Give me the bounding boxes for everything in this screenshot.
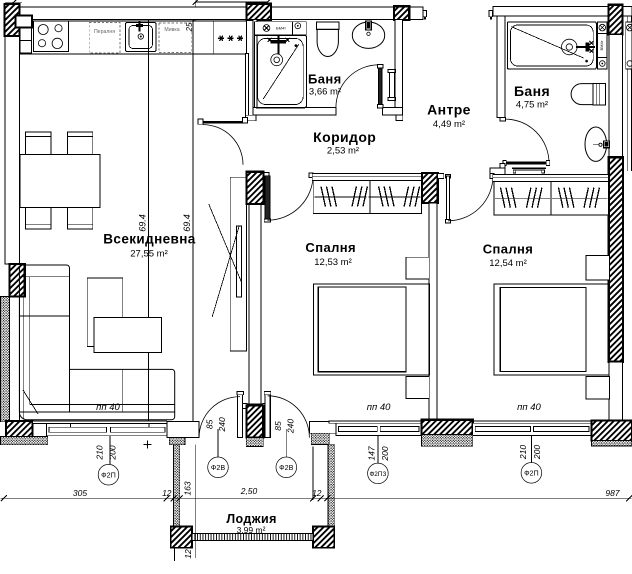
svg-text:163: 163: [183, 481, 193, 495]
svg-text:240: 240: [285, 419, 295, 434]
svg-text:200: 200: [532, 445, 542, 460]
svg-text:987: 987: [605, 488, 619, 498]
svg-text:210: 210: [94, 445, 104, 460]
svg-text:12,53 m²: 12,53 m²: [314, 257, 352, 268]
svg-text:Ф2В: Ф2В: [211, 463, 225, 472]
svg-text:4,49 m²: 4,49 m²: [433, 119, 465, 130]
svg-text:85: 85: [204, 419, 214, 429]
svg-text:200: 200: [108, 445, 118, 460]
svg-text:2,53 m²: 2,53 m²: [327, 146, 359, 157]
svg-text:пп 40: пп 40: [96, 402, 120, 413]
svg-text:240: 240: [217, 417, 227, 432]
svg-text:ВМ4т: ВМ4т: [599, 40, 604, 50]
svg-text:147: 147: [366, 446, 376, 460]
svg-text:12: 12: [162, 488, 172, 498]
svg-text:Баня: Баня: [308, 72, 342, 87]
svg-text:12: 12: [183, 549, 193, 559]
svg-text:12: 12: [312, 488, 322, 498]
svg-text:Спалня: Спалня: [305, 240, 356, 255]
svg-text:Ф2П: Ф2П: [101, 470, 116, 479]
svg-text:2,50: 2,50: [240, 486, 258, 496]
svg-text:210: 210: [518, 445, 528, 460]
svg-text:69.4: 69.4: [138, 214, 148, 232]
svg-text:Коридор: Коридор: [313, 129, 376, 145]
svg-text:БМ4т: БМ4т: [276, 26, 286, 31]
svg-text:3,66 m²: 3,66 m²: [309, 87, 341, 98]
svg-text:Баня: Баня: [514, 83, 550, 99]
svg-text:Мивка: Мивка: [164, 27, 179, 33]
svg-text:Всекидневна: Всекидневна: [103, 232, 196, 247]
svg-text:Ф2ПЗ: Ф2ПЗ: [369, 471, 386, 478]
svg-text:пп 40: пп 40: [517, 402, 541, 413]
svg-text:305: 305: [73, 488, 87, 498]
svg-text:Ф2В: Ф2В: [279, 463, 293, 472]
svg-text:Лоджия: Лоджия: [226, 512, 276, 526]
svg-text:69.4: 69.4: [182, 214, 192, 232]
svg-text:200: 200: [380, 446, 390, 461]
svg-text:Антре: Антре: [427, 102, 471, 118]
svg-text:12,54 m²: 12,54 m²: [489, 258, 527, 269]
svg-text:3,99 m²: 3,99 m²: [237, 525, 266, 535]
svg-text:Пералня: Пералня: [94, 29, 115, 35]
svg-text:27,55 m²: 27,55 m²: [130, 249, 168, 260]
svg-text:Ф2П: Ф2П: [524, 469, 539, 478]
svg-text:Спалня: Спалня: [483, 242, 534, 257]
svg-text:25: 25: [185, 22, 194, 32]
svg-text:пп 40: пп 40: [367, 402, 391, 413]
svg-text:4,75 m²: 4,75 m²: [516, 100, 548, 111]
svg-text:85: 85: [273, 421, 283, 431]
